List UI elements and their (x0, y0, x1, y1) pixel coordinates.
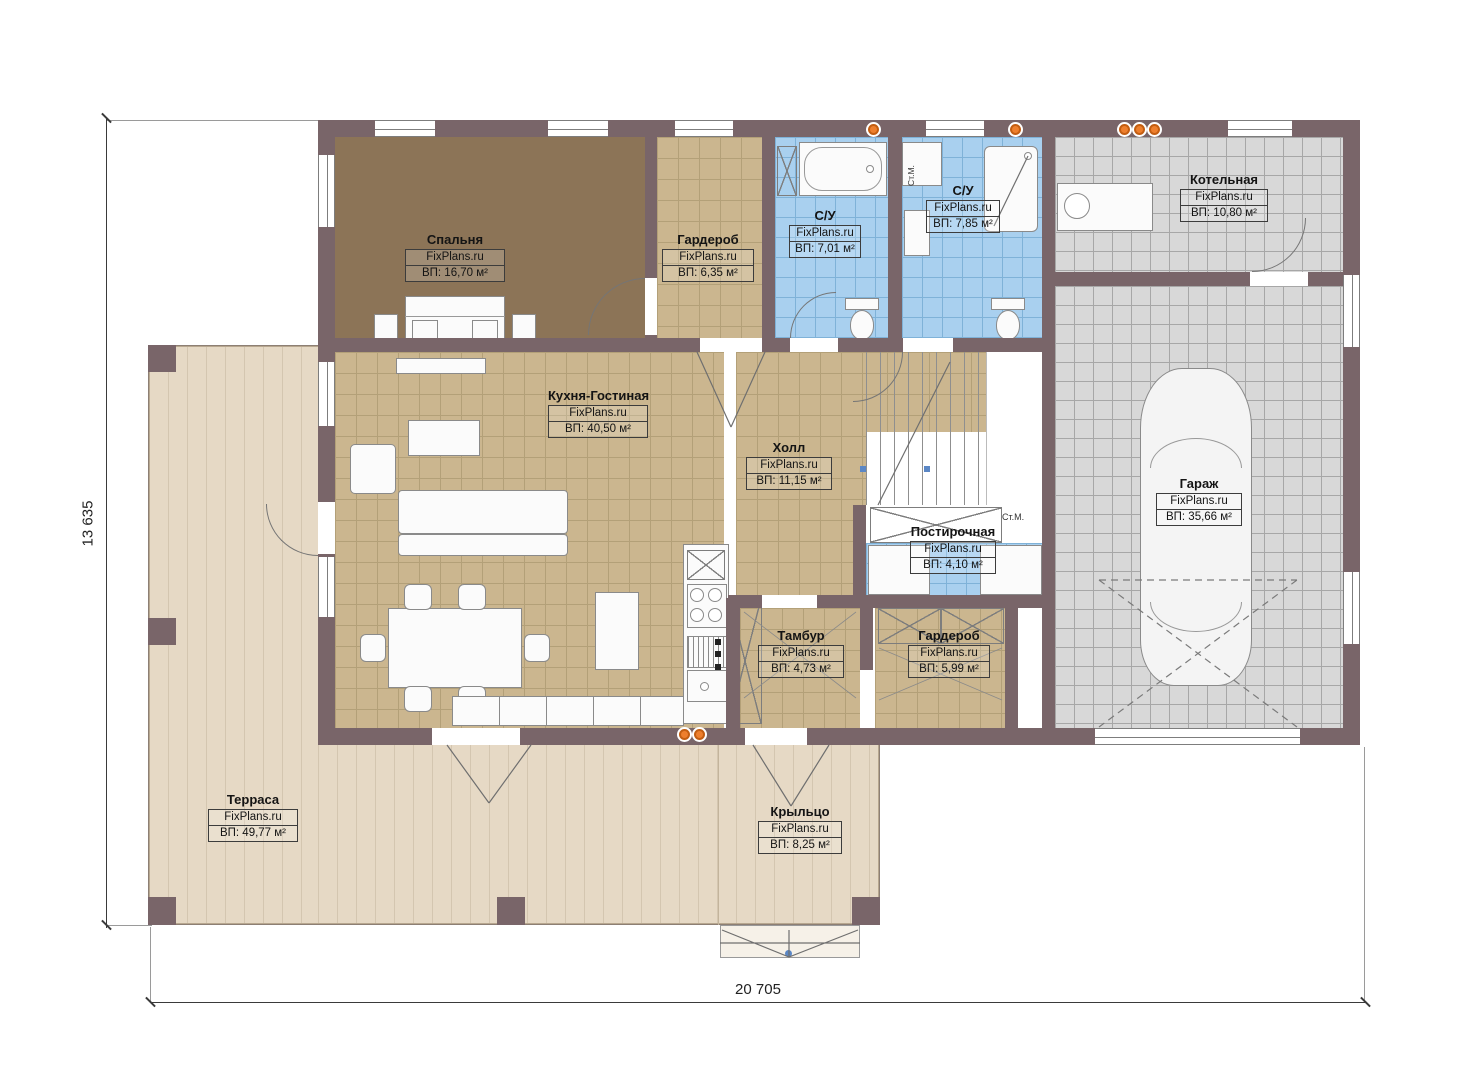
toilet-tank (991, 298, 1025, 310)
burner (690, 608, 704, 622)
oven-knob (700, 682, 709, 691)
area-value: ВП: 5,99 м² (908, 662, 990, 678)
wall-wardrobe-right (1005, 608, 1018, 728)
chair (360, 634, 386, 662)
door-porch (745, 728, 807, 745)
toilet-bowl (996, 310, 1020, 340)
vent-marker (694, 729, 705, 740)
brand-badge: FixPlans.ru (758, 821, 842, 838)
armchair (350, 444, 396, 494)
area-value: ВП: 8,25 м² (758, 838, 842, 854)
counter-dot (715, 639, 721, 645)
burner (708, 608, 722, 622)
door-terrace (318, 502, 335, 554)
dimension-line-horizontal (150, 1002, 1366, 1003)
room-label-bedroom: Спальня FixPlans.ru ВП: 16,70 м² (405, 232, 505, 282)
extension-line (106, 120, 320, 121)
wall-kitchen-vestibule (726, 598, 740, 728)
toilet-bowl (850, 310, 874, 340)
area-value: ВП: 11,15 м² (746, 474, 832, 490)
dimension-width: 20 705 (698, 981, 818, 998)
area-value: ВП: 7,01 м² (789, 242, 861, 258)
room-label-hall: Холл FixPlans.ru ВП: 11,15 м² (746, 440, 832, 490)
room-label-kitchen-living: Кухня-Гостиная FixPlans.ru ВП: 40,50 м² (548, 388, 648, 438)
window (1343, 275, 1360, 347)
terrace-post (148, 618, 176, 645)
stair-post (860, 466, 866, 472)
base-cabinets (452, 696, 684, 726)
room-label-porch: Крыльцо FixPlans.ru ВП: 8,25 м² (758, 804, 842, 854)
sofa-seat (398, 490, 568, 534)
room-label-wardrobe-top: Гардероб FixPlans.ru ВП: 6,35 м² (662, 232, 754, 282)
area-value: ВП: 10,80 м² (1180, 206, 1268, 222)
burner (690, 588, 704, 602)
room-label-bath-left: С/У FixPlans.ru ВП: 7,01 м² (789, 208, 861, 258)
vent-marker (1010, 124, 1021, 135)
stairs-landing (986, 352, 1042, 505)
extension-line (150, 927, 151, 1003)
door-boiler (1250, 272, 1308, 286)
bathtub-drain (866, 165, 874, 173)
window (318, 557, 335, 617)
boiler-sink (1064, 193, 1090, 219)
brand-badge: FixPlans.ru (1180, 189, 1268, 206)
terrace-post (148, 345, 176, 372)
area-value: ВП: 40,50 м² (548, 422, 648, 438)
brand-badge: FixPlans.ru (908, 645, 990, 662)
door-hall-vestibule (762, 595, 817, 608)
area-value: ВП: 4,10 м² (910, 558, 996, 574)
dishwasher (687, 636, 727, 668)
area-value: ВП: 35,66 м² (1156, 510, 1242, 526)
garage-door (1095, 728, 1300, 745)
terrace-post (852, 897, 880, 925)
wall-bath-bath (888, 137, 902, 338)
dining-table (388, 608, 522, 688)
area-value: ВП: 4,73 м² (758, 662, 844, 678)
bath-cabinet (777, 146, 797, 196)
brand-badge: FixPlans.ru (746, 457, 832, 474)
pillow (472, 320, 498, 340)
shower-head (1024, 152, 1032, 160)
chair (404, 584, 432, 610)
burner (708, 588, 722, 602)
window (375, 120, 435, 137)
porch-step-marker (785, 950, 792, 957)
car (1140, 368, 1252, 686)
window (675, 120, 733, 137)
room-label-terrace: Терраса FixPlans.ru ВП: 49,77 м² (208, 792, 298, 842)
dimension-height: 13 635 (80, 494, 97, 554)
porch-divider-line (718, 745, 719, 925)
area-value: ВП: 7,85 м² (926, 217, 1000, 233)
window (318, 155, 335, 227)
wall-stairs-left (853, 505, 866, 608)
brand-badge: FixPlans.ru (926, 200, 1000, 217)
dimension-line-vertical (106, 118, 107, 928)
room-label-boiler: Котельная FixPlans.ru ВП: 10,80 м² (1180, 172, 1268, 222)
wall-wardrobe-bath (762, 137, 775, 338)
counter-dot (715, 651, 721, 657)
bed-line (405, 316, 505, 317)
terrace-post (148, 897, 176, 925)
wall-house-garage (1042, 120, 1055, 742)
room-label-garage: Гараж FixPlans.ru ВП: 35,66 м² (1156, 476, 1242, 526)
door-wardrobe-kitchen (700, 338, 762, 352)
vent-marker (1119, 124, 1130, 135)
door-kitchen-terrace-south (432, 728, 520, 745)
vent-marker (1134, 124, 1145, 135)
chair (458, 584, 486, 610)
area-value: ВП: 6,35 м² (662, 266, 754, 282)
area-value: ВП: 49,77 м² (208, 826, 298, 842)
pillow (412, 320, 438, 340)
kitchen-sink (687, 550, 725, 580)
window (1228, 120, 1292, 137)
coffee-table (408, 420, 480, 456)
brand-badge: FixPlans.ru (548, 405, 648, 422)
toilet-tank (845, 298, 879, 310)
room-label-laundry: Постирочная FixPlans.ru ВП: 4,10 м² (910, 524, 996, 574)
washer-label: Ст.М. (906, 146, 916, 186)
brand-badge: FixPlans.ru (405, 249, 505, 266)
window (926, 120, 984, 137)
brand-badge: FixPlans.ru (758, 645, 844, 662)
chair (404, 686, 432, 712)
window (548, 120, 608, 137)
floor-plan: Ст.М. Ст (0, 0, 1474, 1080)
vent-marker (679, 729, 690, 740)
door-bedroom (645, 278, 657, 335)
window (318, 362, 335, 426)
brand-badge: FixPlans.ru (208, 809, 298, 826)
wall-top (318, 120, 1360, 137)
kitchen-island (595, 592, 639, 670)
wall-right (1343, 120, 1360, 745)
room-label-bath-right: С/У FixPlans.ru ВП: 7,85 м² (926, 183, 1000, 233)
brand-badge: FixPlans.ru (1156, 493, 1242, 510)
stair-post (924, 466, 930, 472)
washer-label: Ст.М. (1002, 512, 1024, 522)
tv-bench (396, 358, 486, 374)
counter-dot (715, 664, 721, 670)
vent-marker (1149, 124, 1160, 135)
chair (524, 634, 550, 662)
window (1343, 572, 1360, 644)
room-label-vestibule: Тамбур FixPlans.ru ВП: 4,73 м² (758, 628, 844, 678)
extension-line (106, 925, 152, 926)
wall-vestibule-wardrobe (860, 608, 873, 670)
room-label-wardrobe-bottom: Гардероб FixPlans.ru ВП: 5,99 м² (908, 628, 990, 678)
terrace-post (497, 897, 525, 925)
vent-marker (868, 124, 879, 135)
door-bath-left (790, 338, 838, 352)
brand-badge: FixPlans.ru (662, 249, 754, 266)
door-bath-right (903, 338, 953, 352)
extension-line (1364, 747, 1365, 1003)
area-value: ВП: 16,70 м² (405, 266, 505, 282)
brand-badge: FixPlans.ru (789, 225, 861, 242)
sofa-back (398, 534, 568, 556)
brand-badge: FixPlans.ru (910, 541, 996, 558)
